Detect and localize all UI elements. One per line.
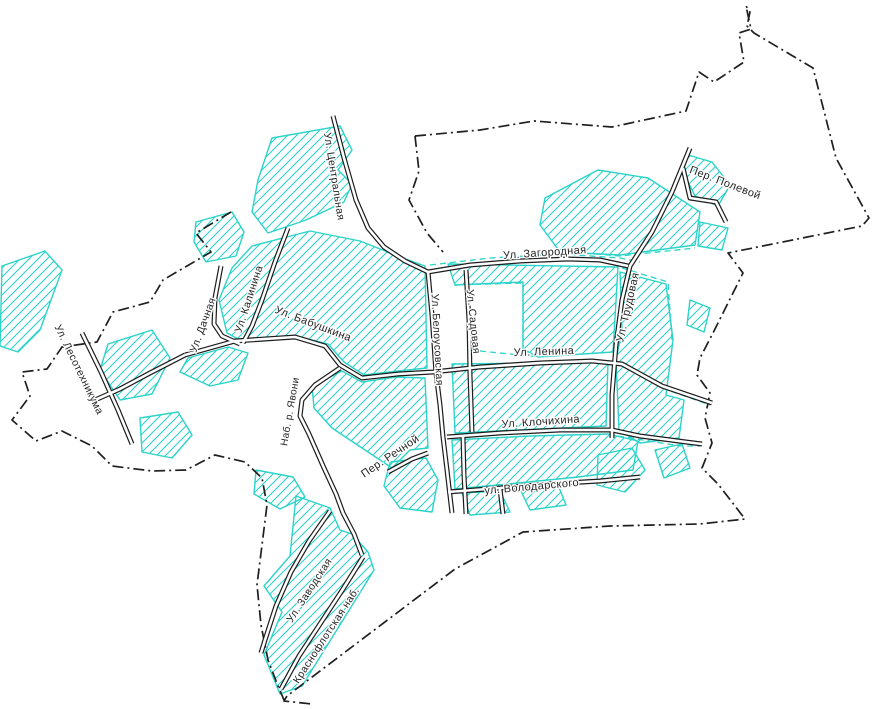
street-label-sadovaya: Ул. Садовая xyxy=(464,289,483,355)
town-map-canvas: Ул. ЦентральнаяУл. ЗагороднаяПер. Полево… xyxy=(0,0,884,709)
street-label-lenina: Ул. Ленина xyxy=(513,345,574,359)
town-map: Ул. ЦентральнаяУл. ЗагороднаяПер. Полево… xyxy=(0,0,884,709)
hatched-areas xyxy=(0,126,730,694)
hatched-area-far-west xyxy=(0,251,62,352)
hatched-area-southeast-2 xyxy=(655,444,690,478)
boundary-line-1 xyxy=(409,136,443,252)
hatched-area-southeast-1 xyxy=(597,448,645,492)
hatched-area-west-small xyxy=(140,412,192,458)
hatched-area-east-bits xyxy=(687,300,710,332)
hatched-area-polevoy-small xyxy=(698,222,728,250)
hatched-area-central-south xyxy=(312,371,428,468)
hatched-area-belousovskaya-south xyxy=(384,458,438,512)
hatched-area-dachnaya-north xyxy=(194,212,244,262)
